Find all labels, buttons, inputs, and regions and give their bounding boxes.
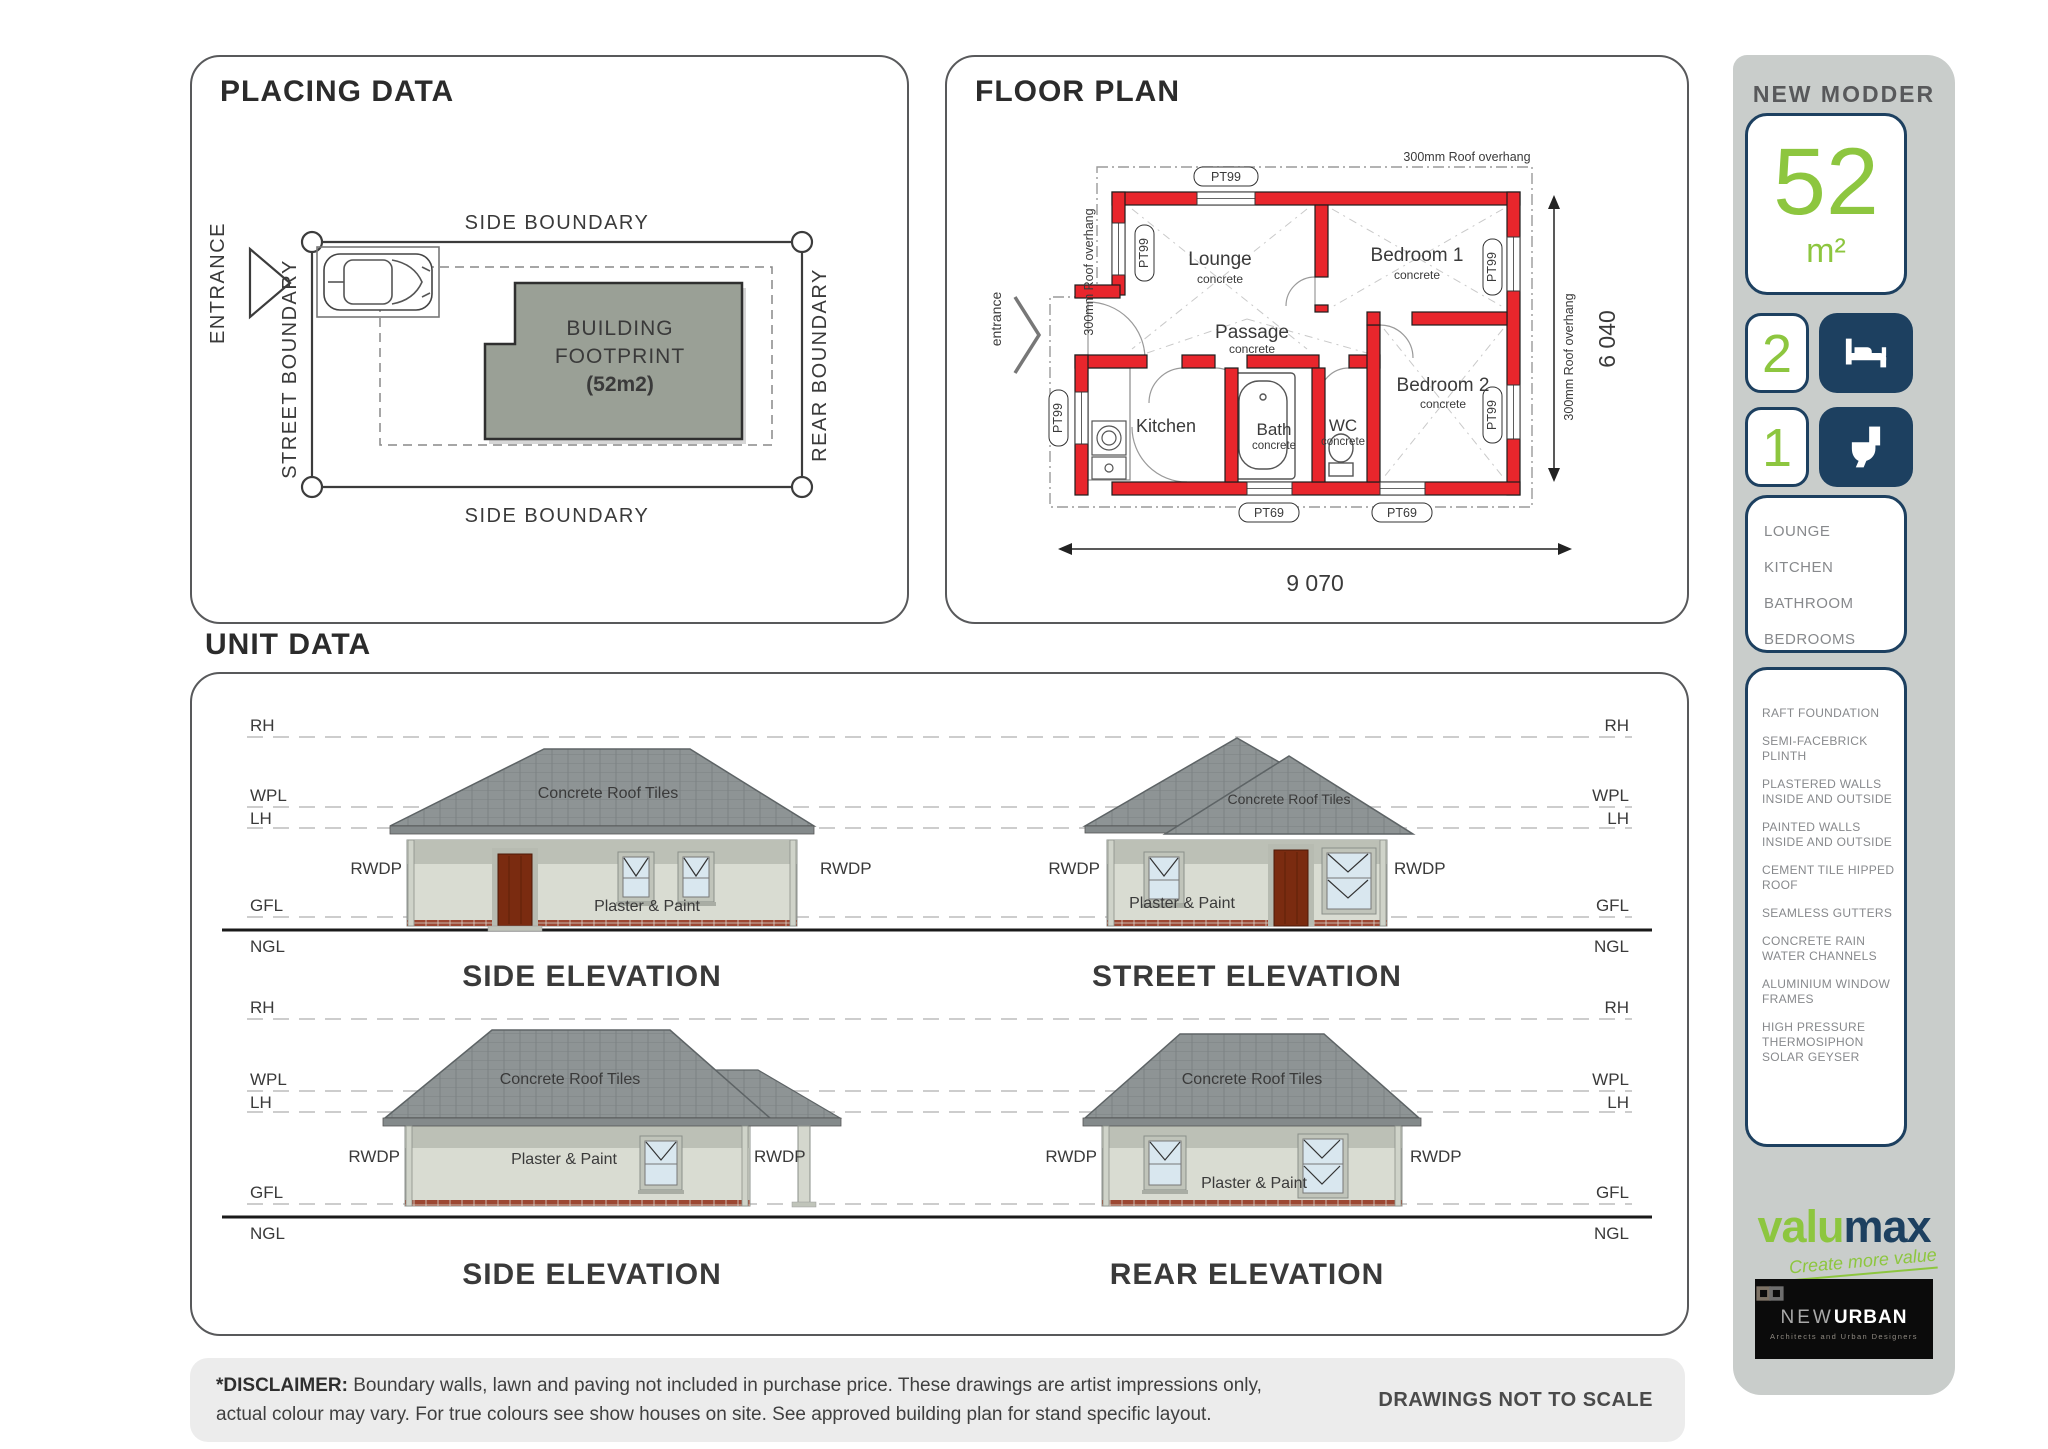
room-finish-passage: concrete [1229, 342, 1275, 356]
level-label-lh: LH [250, 1093, 272, 1112]
footprint-label-line2: FOOTPRINT [555, 345, 685, 368]
level-label-rh: RH [250, 716, 275, 735]
room-label-lounge: Lounge [1188, 249, 1251, 270]
disclaimer-line2: actual colour may vary. For true colours… [216, 1404, 1212, 1425]
level-label-ngl: NGL [1594, 1224, 1629, 1243]
room-finish-wc: concrete [1321, 436, 1365, 448]
entrance-label: entrance [988, 292, 1004, 347]
window-tag-pt99: PT99 [1051, 403, 1065, 433]
side-boundary-top-label: SIDE BOUNDARY [465, 212, 650, 234]
elevation-title-side1: SIDE ELEVATION [462, 960, 722, 993]
wall-finish-label: Plaster & Paint [1201, 1175, 1307, 1192]
level-label-wpl: WPL [250, 786, 287, 805]
room-finish-bedroom2: concrete [1420, 397, 1466, 411]
toilet-icon [1846, 425, 1886, 469]
level-label-gfl: GFL [250, 896, 283, 915]
spec-sidebar: NEW MODDER X8 52 m² 2 1 LOUNGE KITCHEN [1733, 55, 1955, 1395]
room-label-wc: WC [1329, 416, 1357, 435]
room-finish-lounge: concrete [1197, 272, 1243, 286]
roof-overhang-label-top: 300mm Roof overhang [1403, 150, 1530, 164]
drawing-sheet: PLACING DATA [0, 0, 2048, 1449]
window-tag-pt99: PT99 [1211, 170, 1241, 184]
level-label-wpl: WPL [1592, 1070, 1629, 1089]
room-label-bedroom2: Bedroom 2 [1397, 375, 1490, 396]
rwdp-label: RWDP [1048, 859, 1100, 878]
feature-list-item: RAFT FOUNDATION [1762, 706, 1896, 721]
level-label-rh: RH [1604, 716, 1629, 735]
window-tag-pt99: PT99 [1485, 400, 1499, 430]
rear-boundary-label: REAR BOUNDARY [809, 268, 831, 462]
building-footprint: BUILDING FOOTPRINT (52m2) [485, 283, 746, 444]
kitchen-fixtures [1088, 368, 1130, 480]
roof-material-label: Concrete Roof Tiles [1228, 791, 1351, 807]
room-label-kitchen: Kitchen [1136, 416, 1196, 436]
level-label-rh: RH [1604, 998, 1629, 1017]
bedrooms-count: 2 [1748, 316, 1806, 392]
newurban-logo-part2: URBAN [1834, 1307, 1908, 1328]
rwdp-label: RWDP [348, 1147, 400, 1166]
level-label-gfl: GFL [250, 1183, 283, 1202]
footprint-label-line3: (52m2) [586, 373, 654, 396]
disclaimer-line1: Boundary walls, lawn and paving not incl… [353, 1375, 1262, 1396]
elevations-drawing: Concrete Roof Tiles Plaster & Paint Conc… [192, 674, 1687, 1334]
site-plan-drawing: BUILDING FOOTPRINT (52m2) ENTRANCE STREE… [192, 57, 907, 622]
level-label-ngl: NGL [1594, 937, 1629, 956]
window-tag-pt99: PT99 [1485, 252, 1499, 282]
unit-data-title: UNIT DATA [205, 628, 371, 662]
room-list-item: BEDROOMS [1764, 631, 1896, 648]
rwdp-label: RWDP [350, 859, 402, 878]
bedrooms-count-card: 2 [1745, 313, 1809, 393]
footprint-label-line1: BUILDING [566, 317, 673, 340]
room-label-passage: Passage [1215, 322, 1289, 343]
level-label-gfl: GFL [1596, 1183, 1629, 1202]
elevation-rear: Concrete Roof Tiles Plaster & Paint [1083, 1034, 1421, 1206]
window-tag-pt69: PT69 [1254, 506, 1284, 520]
room-finish-bath: concrete [1252, 440, 1296, 452]
roof-material-label: Concrete Roof Tiles [1182, 1071, 1323, 1088]
dimension-width [1058, 543, 1572, 555]
room-list-item: KITCHEN [1764, 559, 1896, 576]
bathrooms-icon-card [1819, 407, 1913, 487]
elevation-title-rear: REAR ELEVATION [1110, 1258, 1385, 1291]
entrance-arrow-icon [1015, 297, 1039, 373]
level-label-lh: LH [250, 809, 272, 828]
newurban-glyph-icon [1755, 1286, 1785, 1301]
car-icon [317, 247, 439, 317]
features-list-card: RAFT FOUNDATION SEMI-FACEBRICK PLINTH PL… [1745, 667, 1907, 1147]
level-label-lh: LH [1607, 809, 1629, 828]
not-to-scale-note: DRAWINGS NOT TO SCALE [1378, 1389, 1653, 1412]
wall-finish-label: Plaster & Paint [511, 1151, 617, 1168]
entrance-label: ENTRANCE [207, 222, 229, 344]
elevation-street: Concrete Roof Tiles Plaster & Paint [1085, 738, 1413, 926]
room-finish-bedroom1: concrete [1394, 268, 1440, 282]
feature-list-item: HIGH PRESSURE THERMOSIPHON SOLAR GEYSER [1762, 1020, 1896, 1065]
feature-list-item: PAINTED WALLS INSIDE AND OUTSIDE [1762, 820, 1896, 850]
rwdp-label: RWDP [820, 859, 872, 878]
area-card: 52 m² [1745, 113, 1907, 295]
rwdp-label: RWDP [1410, 1147, 1462, 1166]
floor-plan-panel: FLOOR PLAN [945, 55, 1689, 624]
bathrooms-count: 1 [1748, 410, 1806, 486]
dimension-width-label: 9 070 [1286, 570, 1344, 596]
bedrooms-icon-card [1819, 313, 1913, 393]
rwdp-label: RWDP [754, 1147, 806, 1166]
newurban-logo: NEWURBAN Architects and Urban Designers [1755, 1279, 1933, 1359]
newurban-tagline: Architects and Urban Designers [1755, 1332, 1933, 1341]
window-tag-pt99: PT99 [1137, 238, 1151, 268]
feature-list-item: SEMI-FACEBRICK PLINTH [1762, 734, 1896, 764]
roof-overhang-label-right: 300mm Roof overhang [1562, 293, 1576, 420]
roof-material-label: Concrete Roof Tiles [538, 785, 679, 802]
window-tag-pt69: PT69 [1387, 506, 1417, 520]
bathrooms-count-card: 1 [1745, 407, 1809, 487]
roof-overhang-label-left: 300mm Roof overhang [1082, 208, 1096, 335]
disclaimer-label: *DISCLAIMER: [216, 1375, 348, 1396]
level-label-rh: RH [250, 998, 275, 1017]
newurban-logo-part1: NEW [1781, 1307, 1834, 1328]
area-unit: m² [1748, 232, 1904, 271]
level-label-ngl: NGL [250, 937, 285, 956]
level-label-wpl: WPL [250, 1070, 287, 1089]
elevation-title-street: STREET ELEVATION [1092, 960, 1402, 993]
placing-data-panel: PLACING DATA [190, 55, 909, 624]
level-label-ngl: NGL [250, 1224, 285, 1243]
bed-icon [1843, 335, 1889, 371]
elevation-side2: Concrete Roof Tiles Plaster & Paint [383, 1030, 841, 1207]
level-label-lh: LH [1607, 1093, 1629, 1112]
rooms-list-card: LOUNGE KITCHEN BATHROOM BEDROOMS [1745, 495, 1907, 653]
elevation-side1: Concrete Roof Tiles Plaster & Paint [390, 749, 814, 931]
room-label-bath: Bath [1257, 420, 1292, 439]
wall-finish-label: Plaster & Paint [1129, 895, 1235, 912]
disclaimer-bar: *DISCLAIMER: Boundary walls, lawn and pa… [190, 1358, 1685, 1442]
unit-data-panel: Concrete Roof Tiles Plaster & Paint Conc… [190, 672, 1689, 1336]
level-label-gfl: GFL [1596, 896, 1629, 915]
level-label-wpl: WPL [1592, 786, 1629, 805]
room-label-bedroom1: Bedroom 1 [1371, 245, 1464, 266]
valumax-logo-part2: max [1843, 1201, 1930, 1252]
feature-list-item: PLASTERED WALLS INSIDE AND OUTSIDE [1762, 777, 1896, 807]
area-value: 52 [1748, 130, 1904, 234]
elevation-title-side2: SIDE ELEVATION [462, 1258, 722, 1291]
valumax-logo-part1: valu [1757, 1201, 1843, 1252]
dimension-depth-label: 6 040 [1594, 310, 1620, 368]
wall-finish-label: Plaster & Paint [594, 898, 700, 915]
floor-plan-drawing: PT99 PT99 PT99 PT99 PT99 PT69 PT69 Loung… [947, 57, 1687, 622]
feature-list-item: CEMENT TILE HIPPED ROOF [1762, 863, 1896, 893]
feature-list-item: CONCRETE RAIN WATER CHANNELS [1762, 934, 1896, 964]
room-list-item: BATHROOM [1764, 595, 1896, 612]
feature-list-item: ALUMINIUM WINDOW FRAMES [1762, 977, 1896, 1007]
side-boundary-bottom-label: SIDE BOUNDARY [465, 505, 650, 527]
rwdp-label: RWDP [1045, 1147, 1097, 1166]
street-boundary-label: STREET BOUNDARY [279, 259, 301, 479]
disclaimer-text: *DISCLAIMER: Boundary walls, lawn and pa… [216, 1371, 1262, 1429]
feature-list-item: SEAMLESS GUTTERS [1762, 906, 1896, 921]
roof-material-label: Concrete Roof Tiles [500, 1071, 641, 1088]
room-list-item: LOUNGE [1764, 523, 1896, 540]
dimension-depth [1548, 195, 1560, 482]
rwdp-label: RWDP [1394, 859, 1446, 878]
